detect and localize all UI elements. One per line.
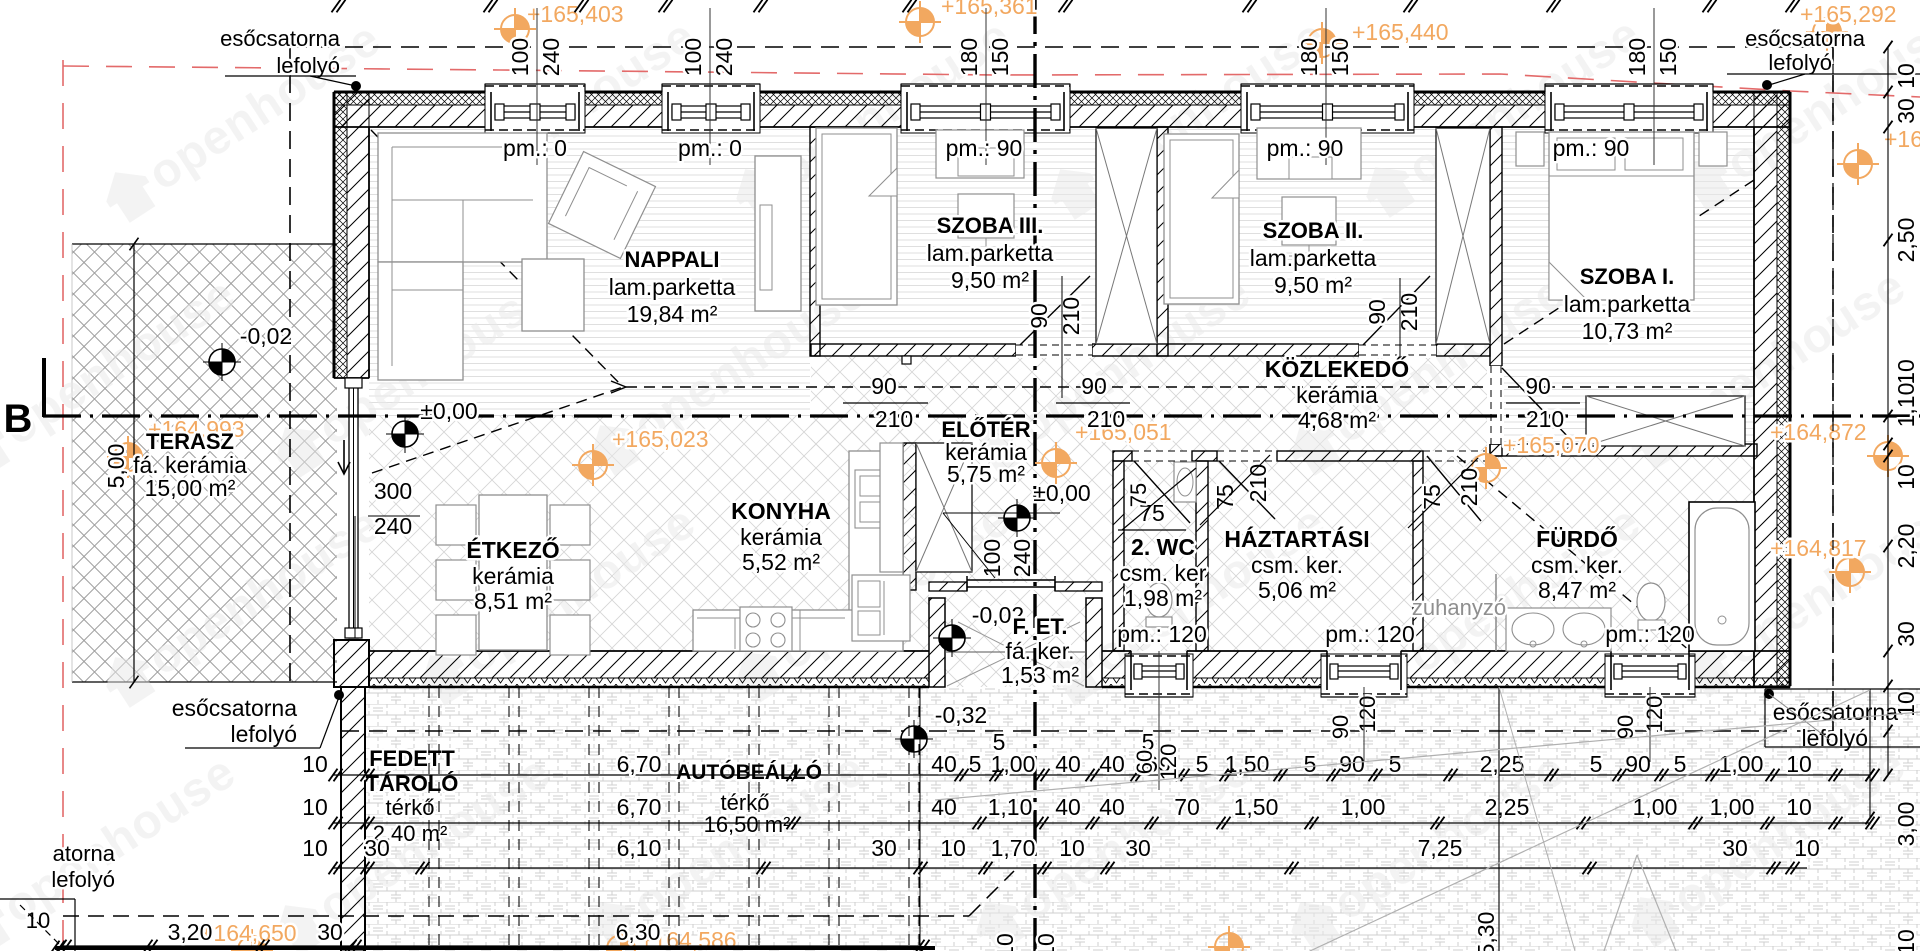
svg-text:+165,023: +165,023 xyxy=(612,426,709,452)
svg-text:kerámia: kerámia xyxy=(472,563,554,589)
svg-text:10: 10 xyxy=(1786,751,1812,777)
svg-text:+165,440: +165,440 xyxy=(1352,19,1449,45)
svg-text:7,25: 7,25 xyxy=(1418,835,1463,861)
svg-text:1,00: 1,00 xyxy=(991,751,1036,777)
svg-text:pm.: 90: pm.: 90 xyxy=(946,135,1023,161)
svg-text:csm. ker: csm. ker xyxy=(1120,560,1207,586)
svg-text:210: 210 xyxy=(1526,406,1564,432)
svg-text:6,70: 6,70 xyxy=(617,794,662,820)
svg-text:SZOBA III.: SZOBA III. xyxy=(937,213,1044,238)
svg-text:240: 240 xyxy=(711,38,737,76)
svg-text:90: 90 xyxy=(1364,299,1390,325)
svg-text:3,20: 3,20 xyxy=(168,919,213,945)
svg-text:+164,650: +164,650 xyxy=(200,920,297,946)
svg-text:kerámia: kerámia xyxy=(1296,382,1378,408)
svg-text:lam.parketta: lam.parketta xyxy=(927,240,1054,266)
svg-text:2,50: 2,50 xyxy=(1893,218,1919,263)
svg-text:30: 30 xyxy=(1893,98,1919,124)
svg-text:100: 100 xyxy=(979,539,1005,577)
svg-text:FEDETT: FEDETT xyxy=(369,746,455,771)
svg-text:30: 30 xyxy=(1893,621,1919,647)
svg-text:10: 10 xyxy=(302,835,328,861)
svg-text:5: 5 xyxy=(1590,751,1603,777)
svg-text:75: 75 xyxy=(1126,483,1151,507)
svg-text:40: 40 xyxy=(1099,751,1125,777)
svg-text:pm.: 0: pm.: 0 xyxy=(503,135,567,161)
svg-text:40: 40 xyxy=(931,751,957,777)
svg-text:±0,00: ±0,00 xyxy=(1033,480,1090,506)
svg-text:+164,817: +164,817 xyxy=(1770,535,1867,561)
svg-text:5: 5 xyxy=(1304,751,1317,777)
svg-text:1,00: 1,00 xyxy=(1341,794,1386,820)
svg-text:10: 10 xyxy=(302,794,328,820)
svg-text:5,06 m²: 5,06 m² xyxy=(1258,577,1336,603)
svg-text:5,00: 5,00 xyxy=(103,444,129,489)
svg-text:90: 90 xyxy=(1328,715,1353,739)
svg-text:TERASZ: TERASZ xyxy=(146,429,234,454)
svg-text:150: 150 xyxy=(1655,38,1681,76)
svg-text:lefolyó: lefolyó xyxy=(231,721,297,747)
svg-text:1,10: 1,10 xyxy=(1893,383,1919,428)
svg-text:1,50: 1,50 xyxy=(1234,794,1279,820)
svg-text:KONYHA: KONYHA xyxy=(731,498,831,524)
svg-text:9,50 m²: 9,50 m² xyxy=(951,267,1029,293)
svg-text:lam.parketta: lam.parketta xyxy=(1250,245,1377,271)
svg-text:HÁZTARTÁSI: HÁZTARTÁSI xyxy=(1224,525,1369,552)
svg-text:pm.: 120: pm.: 120 xyxy=(1325,621,1415,647)
svg-text:esőcsatorna: esőcsatorna xyxy=(1773,699,1899,725)
svg-text:10: 10 xyxy=(1893,929,1919,951)
svg-text:90: 90 xyxy=(1081,373,1107,399)
svg-text:+165,361: +165,361 xyxy=(941,0,1038,19)
svg-text:ÉTKEZŐ: ÉTKEZŐ xyxy=(466,536,559,563)
svg-text:100: 100 xyxy=(680,38,706,76)
svg-text:120: 120 xyxy=(1156,744,1181,781)
svg-text:lefolyó: lefolyó xyxy=(1768,50,1832,75)
svg-text:90: 90 xyxy=(1625,751,1651,777)
svg-text:+164,872: +164,872 xyxy=(1770,419,1867,445)
svg-text:40: 40 xyxy=(1055,794,1081,820)
svg-text:90: 90 xyxy=(1525,373,1551,399)
svg-text:lefolyó: lefolyó xyxy=(276,53,340,78)
svg-text:10: 10 xyxy=(302,751,328,777)
svg-text:75: 75 xyxy=(1419,484,1445,510)
svg-text:B: B xyxy=(4,397,33,441)
svg-text:2,20: 2,20 xyxy=(1893,524,1919,569)
svg-text:2,25: 2,25 xyxy=(1485,794,1530,820)
svg-text:±0,00: ±0,00 xyxy=(420,398,477,424)
svg-text:5: 5 xyxy=(969,751,982,777)
svg-text:90: 90 xyxy=(871,373,897,399)
svg-text:9,50 m²: 9,50 m² xyxy=(1274,272,1352,298)
svg-text:10: 10 xyxy=(1033,933,1059,951)
svg-text:19,84 m²: 19,84 m² xyxy=(627,301,718,327)
svg-text:1,00: 1,00 xyxy=(1719,751,1764,777)
svg-text:SZOBA I.: SZOBA I. xyxy=(1580,264,1675,289)
svg-text:10: 10 xyxy=(1059,835,1085,861)
svg-text:-0,32: -0,32 xyxy=(935,702,987,728)
svg-text:esőcsatorna: esőcsatorna xyxy=(1745,26,1866,51)
svg-text:1,10: 1,10 xyxy=(988,794,1033,820)
svg-text:30: 30 xyxy=(1722,835,1748,861)
svg-text:1,70: 1,70 xyxy=(991,835,1036,861)
svg-text:pm.: 0: pm.: 0 xyxy=(678,135,742,161)
svg-text:zuhanyzó: zuhanyzó xyxy=(1412,595,1506,620)
svg-text:5,30: 5,30 xyxy=(1473,912,1499,951)
svg-text:8,47 m²: 8,47 m² xyxy=(1538,577,1616,603)
svg-text:10: 10 xyxy=(1794,835,1820,861)
svg-text:2. WC: 2. WC xyxy=(1131,534,1195,560)
svg-text:lam.parketta: lam.parketta xyxy=(1564,291,1691,317)
svg-text:csm. ker.: csm. ker. xyxy=(1531,552,1623,578)
svg-text:240: 240 xyxy=(1009,539,1035,577)
svg-text:120: 120 xyxy=(1642,696,1667,733)
svg-text:10: 10 xyxy=(940,835,966,861)
svg-text:90: 90 xyxy=(1613,715,1638,739)
svg-text:-0,02: -0,02 xyxy=(240,323,292,349)
svg-text:16,50 m²: 16,50 m² xyxy=(704,812,791,837)
svg-text:30: 30 xyxy=(364,835,390,861)
svg-text:60: 60 xyxy=(1132,750,1157,774)
svg-text:5: 5 xyxy=(1674,751,1687,777)
svg-text:240: 240 xyxy=(374,513,412,539)
svg-text:+165,292: +165,292 xyxy=(1800,1,1897,27)
svg-text:1,00: 1,00 xyxy=(1710,794,1755,820)
svg-text:pm.: 90: pm.: 90 xyxy=(1267,135,1344,161)
svg-text:5: 5 xyxy=(1196,751,1209,777)
svg-text:5: 5 xyxy=(1389,751,1402,777)
svg-text:210: 210 xyxy=(1087,406,1125,432)
svg-text:40: 40 xyxy=(1055,751,1081,777)
svg-text:150: 150 xyxy=(987,38,1013,76)
svg-text:30: 30 xyxy=(871,835,897,861)
svg-text:75: 75 xyxy=(1212,484,1238,510)
svg-text:2,25: 2,25 xyxy=(1480,751,1525,777)
svg-text:pm.: 120: pm.: 120 xyxy=(1605,621,1695,647)
svg-text:300: 300 xyxy=(374,478,412,504)
svg-text:180: 180 xyxy=(1296,38,1322,76)
svg-text:70: 70 xyxy=(1174,794,1200,820)
svg-text:1,53 m²: 1,53 m² xyxy=(1001,662,1079,688)
svg-text:10: 10 xyxy=(26,908,50,933)
svg-text:210: 210 xyxy=(1245,464,1271,502)
svg-text:atorna: atorna xyxy=(53,841,116,866)
svg-text:10: 10 xyxy=(992,933,1018,951)
svg-text:1,98 m²: 1,98 m² xyxy=(1124,585,1202,611)
svg-text:180: 180 xyxy=(1624,38,1650,76)
svg-text:5,75 m²: 5,75 m² xyxy=(947,461,1025,487)
svg-text:csm. ker.: csm. ker. xyxy=(1251,552,1343,578)
svg-text:15,00 m²: 15,00 m² xyxy=(145,475,236,501)
svg-text:KÖZLEKEDŐ: KÖZLEKEDŐ xyxy=(1265,355,1409,382)
svg-text:150: 150 xyxy=(1327,38,1353,76)
svg-text:3,00: 3,00 xyxy=(1893,802,1919,847)
svg-text:6,10: 6,10 xyxy=(617,835,662,861)
svg-text:pm.: 120: pm.: 120 xyxy=(1117,621,1207,647)
svg-text:lefolyó: lefolyó xyxy=(51,867,115,892)
svg-text:90: 90 xyxy=(1026,303,1052,329)
svg-text:+165,070: +165,070 xyxy=(1503,432,1600,458)
svg-text:pm.: 90: pm.: 90 xyxy=(1553,135,1630,161)
svg-text:10: 10 xyxy=(1786,794,1812,820)
svg-text:100: 100 xyxy=(507,38,533,76)
svg-text:SZOBA II.: SZOBA II. xyxy=(1263,218,1364,243)
svg-text:+165,403: +165,403 xyxy=(527,1,624,27)
svg-text:fá. ker.: fá. ker. xyxy=(1005,638,1074,664)
svg-text:lam.parketta: lam.parketta xyxy=(609,274,736,300)
svg-text:esőcsatorna: esőcsatorna xyxy=(172,695,298,721)
svg-text:esőcsatorna: esőcsatorna xyxy=(220,26,341,51)
svg-text:10: 10 xyxy=(1893,464,1919,490)
svg-text:120: 120 xyxy=(1355,696,1380,733)
svg-text:10: 10 xyxy=(1893,63,1919,89)
svg-text:4,68 m²: 4,68 m² xyxy=(1298,407,1376,433)
svg-text:+165: +165 xyxy=(1884,126,1920,152)
svg-text:térkő: térkő xyxy=(386,795,435,820)
svg-text:180: 180 xyxy=(956,38,982,76)
svg-text:10,73 m²: 10,73 m² xyxy=(1582,318,1673,344)
svg-text:30: 30 xyxy=(317,919,343,945)
svg-text:NAPPALI: NAPPALI xyxy=(625,247,720,272)
svg-text:5,52 m²: 5,52 m² xyxy=(742,549,820,575)
svg-text:F. ET.: F. ET. xyxy=(1012,614,1067,639)
svg-text:40: 40 xyxy=(1099,794,1125,820)
svg-text:210: 210 xyxy=(1456,468,1482,506)
svg-text:240: 240 xyxy=(538,38,564,76)
svg-text:210: 210 xyxy=(875,406,913,432)
svg-text:6,30: 6,30 xyxy=(616,919,661,945)
svg-text:30: 30 xyxy=(1125,835,1151,861)
svg-text:6,70: 6,70 xyxy=(617,751,662,777)
svg-text:10: 10 xyxy=(1893,359,1919,385)
svg-text:FÜRDŐ: FÜRDŐ xyxy=(1536,525,1618,552)
svg-text:kerámia: kerámia xyxy=(740,524,822,550)
svg-text:8,51 m²: 8,51 m² xyxy=(474,588,552,614)
